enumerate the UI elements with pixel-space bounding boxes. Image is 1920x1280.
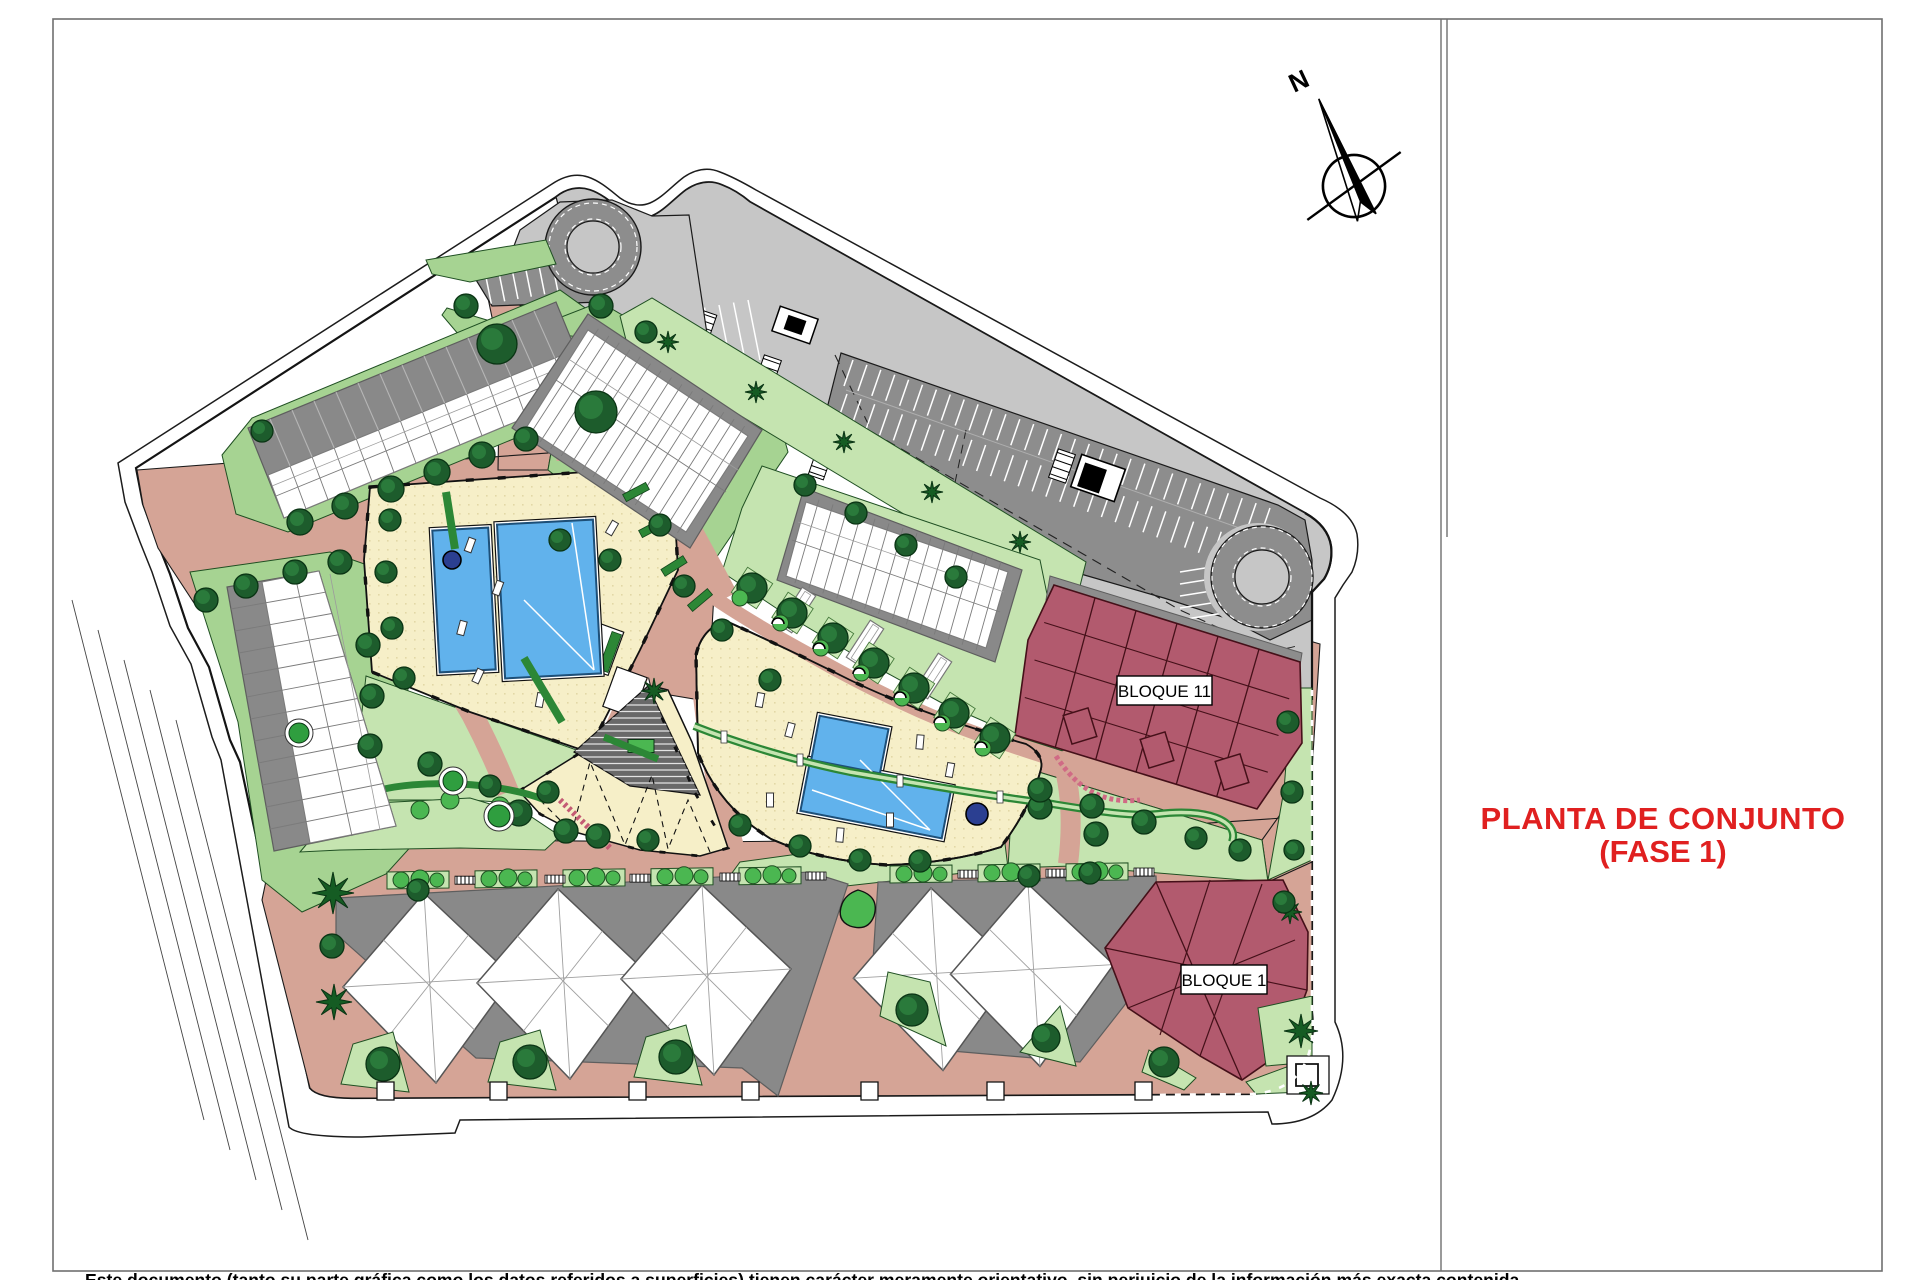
svg-text:PLANTA DE CONJUNTO: PLANTA DE CONJUNTO [1481, 801, 1846, 836]
svg-text:Este documento (tanto su parte: Este documento (tanto su parte gráfica c… [85, 1270, 1520, 1280]
svg-text:(FASE 1): (FASE 1) [1599, 834, 1726, 869]
svg-text:BLOQUE 11: BLOQUE 11 [1118, 682, 1211, 701]
svg-text:BLOQUE 1: BLOQUE 1 [1181, 971, 1266, 990]
